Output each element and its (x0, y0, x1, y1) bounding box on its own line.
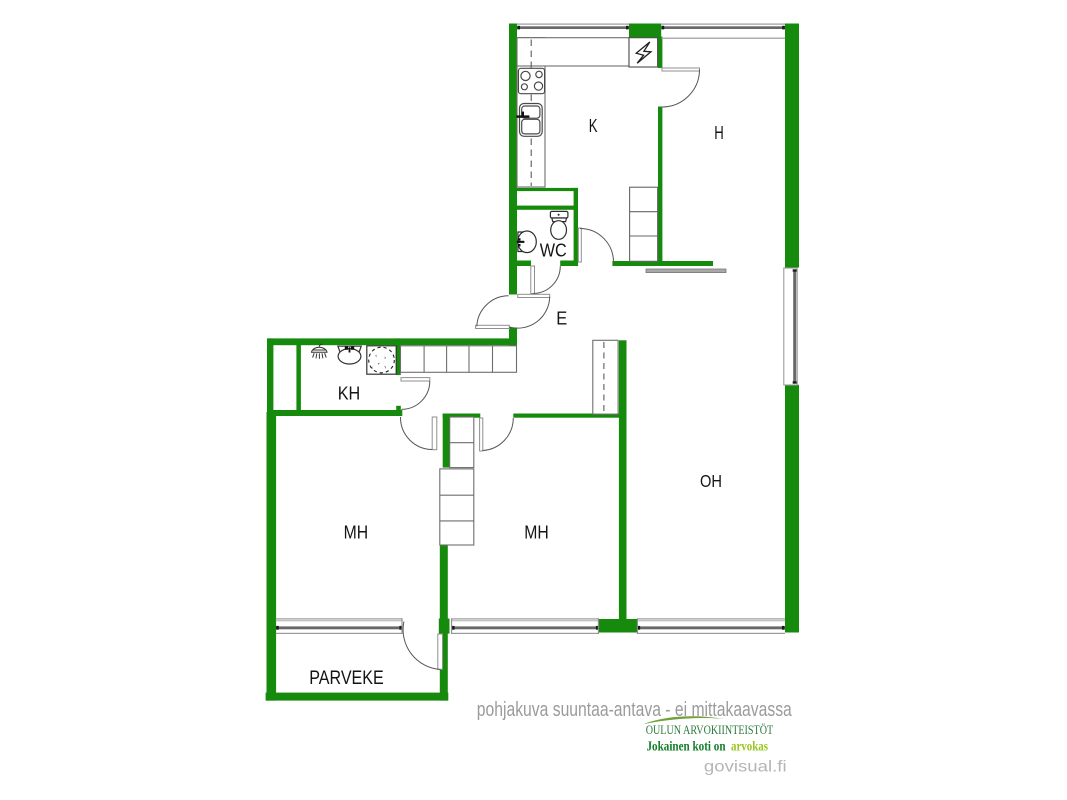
svg-text:K: K (589, 116, 598, 136)
svg-text:MH: MH (524, 523, 549, 543)
svg-text:OH: OH (700, 471, 722, 491)
svg-text:arvokas: arvokas (731, 740, 768, 755)
svg-text:govisual.fi: govisual.fi (704, 759, 787, 776)
svg-text:Jokainen koti on: Jokainen koti on (647, 740, 726, 755)
svg-text:pohjakuva suuntaa-antava - ei: pohjakuva suuntaa-antava - ei mittakaava… (477, 699, 793, 721)
svg-text:›: › (384, 354, 386, 361)
svg-text:MH: MH (344, 522, 369, 542)
svg-text:‹: ‹ (371, 364, 373, 371)
svg-text:H: H (714, 123, 724, 143)
svg-text:WC: WC (540, 241, 567, 261)
svg-text:KH: KH (338, 383, 361, 403)
svg-text:‹: ‹ (375, 352, 377, 359)
svg-text:E: E (556, 308, 567, 328)
svg-text:PARVEKE: PARVEKE (309, 667, 384, 689)
svg-text:OULUN ARVOKIINTEISTÖT: OULUN ARVOKIINTEISTÖT (646, 722, 774, 737)
